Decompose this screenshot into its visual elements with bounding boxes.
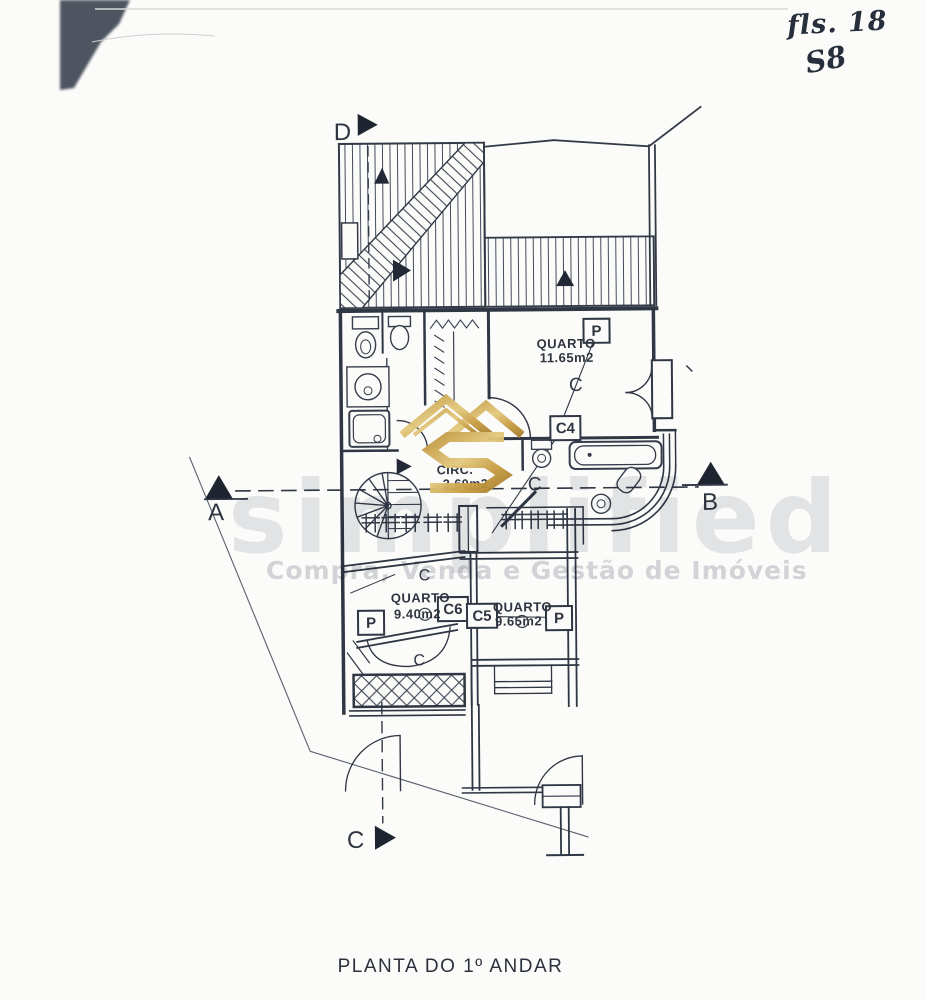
- handwritten-sheet-number: fls. 18 S8: [786, 5, 890, 75]
- toilet-tank: [352, 317, 378, 329]
- window: [652, 360, 673, 418]
- section-label-d: D: [334, 119, 352, 146]
- section-arrow-c-icon: [375, 826, 396, 850]
- section-arrow-a-icon: [205, 475, 233, 499]
- brand-logo-gold-roof-s-icon: [398, 383, 528, 495]
- compartment-tag-c4: C4: [556, 420, 576, 437]
- door-tag-p3: P: [554, 610, 564, 627]
- section-arrow-d-icon: [358, 114, 378, 136]
- closet-letter: C: [528, 474, 542, 495]
- room-area-bedroom1: 11.65m2: [540, 350, 594, 365]
- closet-letter: C: [569, 375, 583, 396]
- floor-plan-drawing: A B C D P C4 C6 C5: [0, 0, 927, 1000]
- bathroom-fixtures-right: [531, 439, 662, 514]
- scan-artifacts: [60, 0, 788, 90]
- section-line-c: [382, 703, 383, 823]
- door-tag-p2: P: [366, 615, 376, 632]
- scanned-floor-plan-page: A B C D P C4 C6 C5: [0, 0, 927, 1000]
- closet-letter: C: [413, 652, 425, 669]
- section-label-c: C: [347, 827, 365, 854]
- section-arrow-b-icon: [697, 462, 725, 485]
- section-label-b: B: [702, 489, 718, 516]
- room-area-bedroom2: 9.40m2: [394, 606, 441, 621]
- section-label-a: A: [208, 499, 224, 526]
- roof-terrace: [339, 107, 703, 308]
- door-swing: [345, 736, 400, 791]
- chimney: [342, 223, 358, 259]
- closet-letter: C: [419, 567, 431, 584]
- balcony-hatch: [354, 674, 465, 707]
- bidet: [390, 325, 408, 349]
- compartment-tag-c5: C5: [472, 608, 491, 625]
- plan-title: PLANTA DO 1º ANDAR: [0, 956, 914, 978]
- room-label-bedroom2: QUARTO: [391, 590, 450, 606]
- s-monogram: [430, 437, 504, 488]
- room-label-bedroom3: QUARTO: [493, 599, 552, 615]
- page-corner-shadow: [60, 0, 130, 90]
